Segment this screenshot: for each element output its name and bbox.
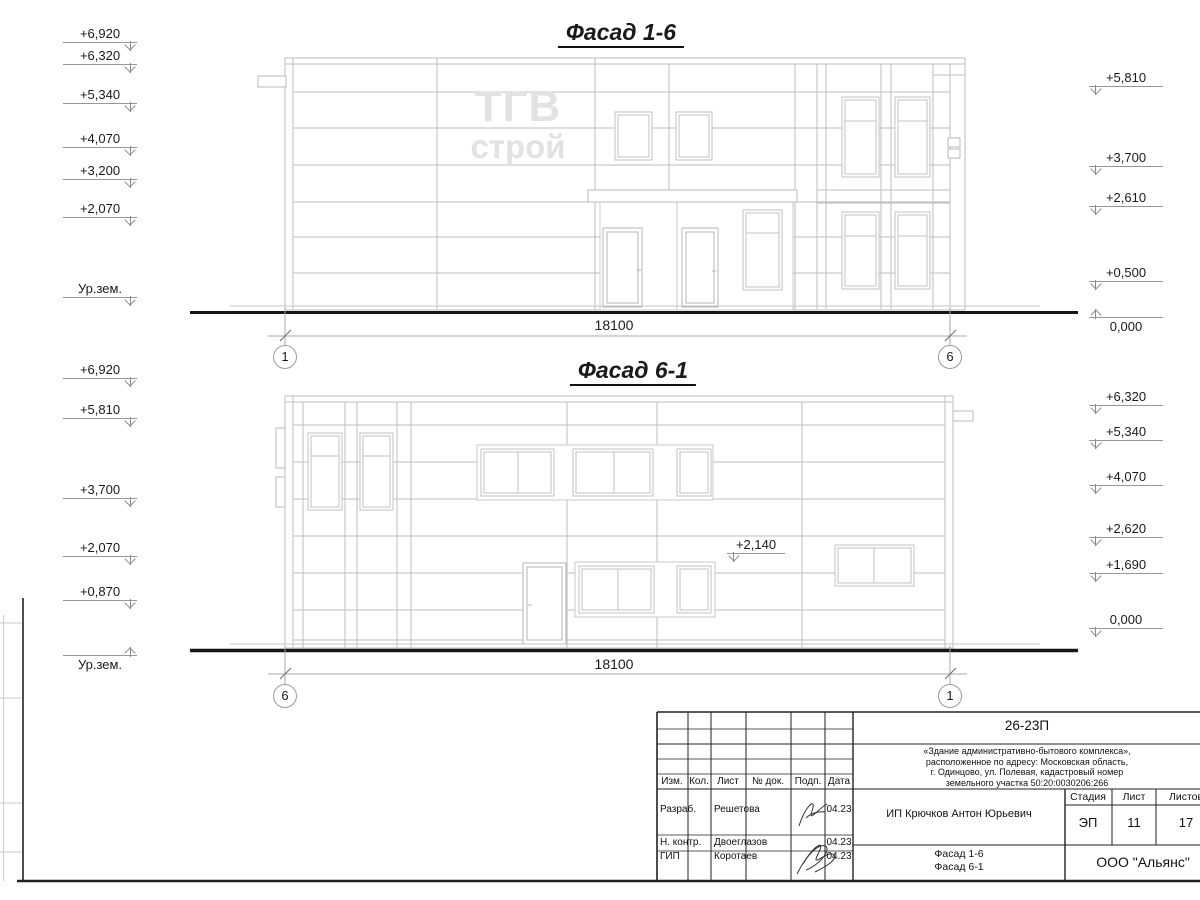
row-role: ГИП bbox=[660, 851, 680, 862]
sheet-label: Лист bbox=[1123, 791, 1146, 803]
drawing-sheet: Фасад 1-6 ТГВ строй +6,920 +6,320 +5,340… bbox=[0, 0, 1200, 900]
elevation-mark: Ур.зем. bbox=[63, 281, 137, 298]
axis-bubble-1: 1 bbox=[273, 345, 297, 369]
elevation-value: +3,200 bbox=[63, 163, 137, 180]
description-line: г. Одинцово, ул. Полевая, кадастровый но… bbox=[923, 767, 1130, 778]
col-header-ndok: № док. bbox=[752, 776, 784, 787]
elevation-value: 0,000 bbox=[1089, 317, 1163, 334]
elevation-mark: +4,070 bbox=[1089, 469, 1163, 486]
elevation-mark: +4,070 bbox=[63, 131, 137, 148]
elevation-mark: +1,690 bbox=[1089, 557, 1163, 574]
row-role: Разраб. bbox=[660, 804, 696, 815]
elevation-mark: +2,140 bbox=[727, 537, 785, 554]
sheet-number: 11 bbox=[1127, 815, 1141, 830]
row-name: Решетова bbox=[714, 804, 760, 815]
elevation-value: +5,340 bbox=[63, 87, 137, 104]
elevation-value: +5,810 bbox=[63, 402, 137, 419]
description-line: земельного участка 50:20:0030206:266 bbox=[923, 778, 1130, 789]
elevation-mark: +0,500 bbox=[1089, 265, 1163, 282]
elevation-mark: +0,870 bbox=[63, 584, 137, 601]
elevation-mark: +6,320 bbox=[1089, 389, 1163, 406]
elevation-value: +2,070 bbox=[63, 201, 137, 218]
axis-bubble-6: 6 bbox=[273, 684, 297, 708]
elevation-mark: +6,320 bbox=[63, 48, 137, 65]
elevation-value: +3,700 bbox=[63, 482, 137, 499]
axis-bubble-6: 6 bbox=[938, 345, 962, 369]
elevation-mark: +6,920 bbox=[63, 26, 137, 43]
company-name: ООО "Альянс" bbox=[1096, 854, 1190, 870]
facade-6-1-openings bbox=[276, 411, 973, 644]
elevation-value: +4,070 bbox=[63, 131, 137, 148]
stage-value: ЭП bbox=[1079, 815, 1098, 830]
stage-label: Стадия bbox=[1070, 791, 1106, 803]
elevation-mark: +5,810 bbox=[63, 402, 137, 419]
doc-number: 26-23П bbox=[1005, 718, 1049, 733]
elevation-value: +6,920 bbox=[63, 362, 137, 379]
elevation-mark: +2,070 bbox=[63, 540, 137, 557]
col-header-kol: Кол. bbox=[689, 776, 709, 787]
elevation-mark: 0,000 bbox=[1089, 612, 1163, 629]
logo-line-1: ТГВ bbox=[468, 84, 568, 130]
col-header-data: Дата bbox=[828, 776, 850, 787]
elevation-value: +3,700 bbox=[1089, 150, 1163, 167]
project-description: «Здание административно-бытового комплек… bbox=[923, 746, 1130, 788]
elevation-value: +5,810 bbox=[1089, 70, 1163, 87]
elevation-value: +2,620 bbox=[1089, 521, 1163, 538]
elevation-mark: +3,700 bbox=[63, 482, 137, 499]
tgv-stroy-logo: ТГВ строй bbox=[468, 84, 568, 163]
row-name: Коротаев bbox=[714, 851, 757, 862]
client-name: ИП Крючков Антон Юрьевич bbox=[886, 808, 1031, 820]
col-header-list: Лист bbox=[717, 776, 739, 787]
elevation-mark: +3,200 bbox=[63, 163, 137, 180]
axis-bubble-1: 1 bbox=[938, 684, 962, 708]
elevation-mark: 0,000 bbox=[1089, 317, 1163, 334]
elevation-mark: +3,700 bbox=[1089, 150, 1163, 167]
elevation-mark: +6,920 bbox=[63, 362, 137, 379]
facade-6-1-title: Фасад 6-1 bbox=[570, 358, 696, 386]
elevation-mark: +5,340 bbox=[1089, 424, 1163, 441]
facade-1-6-dimension: 18100 bbox=[595, 317, 634, 333]
sheets-total: 17 bbox=[1179, 815, 1193, 830]
elevation-value: +2,610 bbox=[1089, 190, 1163, 207]
elevation-value: +6,920 bbox=[63, 26, 137, 43]
elevation-mark: +2,620 bbox=[1089, 521, 1163, 538]
elevation-value: +0,870 bbox=[63, 584, 137, 601]
drawing-title-1: Фасад 1-6 bbox=[934, 848, 983, 860]
col-header-podp: Подп. bbox=[795, 776, 822, 787]
elevation-value: +1,690 bbox=[1089, 557, 1163, 574]
elevation-mark: +2,070 bbox=[63, 201, 137, 218]
row-date: 04.23 bbox=[826, 851, 851, 862]
logo-line-2: строй bbox=[468, 130, 568, 163]
row-date: 04.23 bbox=[826, 837, 851, 848]
elevation-mark: +2,610 bbox=[1089, 190, 1163, 207]
elevation-value: +5,340 bbox=[1089, 424, 1163, 441]
col-header-izm: Изм. bbox=[661, 776, 682, 787]
row-date: 04.23 bbox=[826, 804, 851, 815]
elevation-value: 0,000 bbox=[1089, 612, 1163, 629]
facade-1-6-openings bbox=[258, 76, 960, 310]
description-line: расположенное по адресу: Московская обла… bbox=[923, 757, 1130, 768]
elevation-value: +2,070 bbox=[63, 540, 137, 557]
sheets-label: Листов bbox=[1169, 791, 1200, 803]
elevation-value: +6,320 bbox=[1089, 389, 1163, 406]
description-line: «Здание административно-бытового комплек… bbox=[923, 746, 1130, 757]
elevation-value: Ур.зем. bbox=[63, 281, 137, 298]
signature-razrab bbox=[799, 804, 827, 826]
elevation-value: +0,500 bbox=[1089, 265, 1163, 282]
facade-6-1-dimension: 18100 bbox=[595, 656, 634, 672]
drawing-title-2: Фасад 6-1 bbox=[934, 861, 983, 873]
elevation-value: +4,070 bbox=[1089, 469, 1163, 486]
facade-1-6-title: Фасад 1-6 bbox=[558, 20, 684, 48]
elevation-value: Ур.зем. bbox=[63, 655, 137, 672]
row-role: Н. контр. bbox=[660, 837, 701, 848]
elevation-mark: +5,810 bbox=[1089, 70, 1163, 87]
elevation-mark: Ур.зем. bbox=[63, 655, 137, 672]
elevation-mark: +5,340 bbox=[63, 87, 137, 104]
elevation-value: +2,140 bbox=[727, 537, 785, 554]
elevation-value: +6,320 bbox=[63, 48, 137, 65]
row-name: Двоеглазов bbox=[714, 837, 767, 848]
